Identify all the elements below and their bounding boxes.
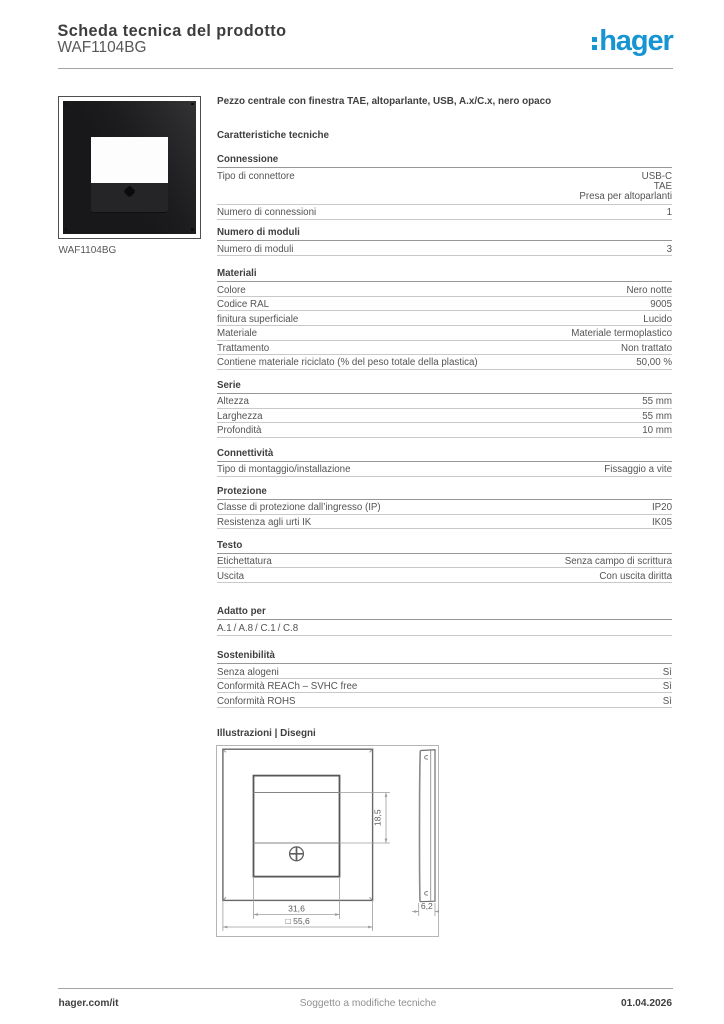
svg-text:18,5: 18,5 [373, 809, 383, 826]
svg-text:31,6: 31,6 [288, 904, 305, 914]
svg-text:6,2: 6,2 [421, 901, 433, 911]
svg-text:□ 55,6: □ 55,6 [286, 916, 311, 926]
